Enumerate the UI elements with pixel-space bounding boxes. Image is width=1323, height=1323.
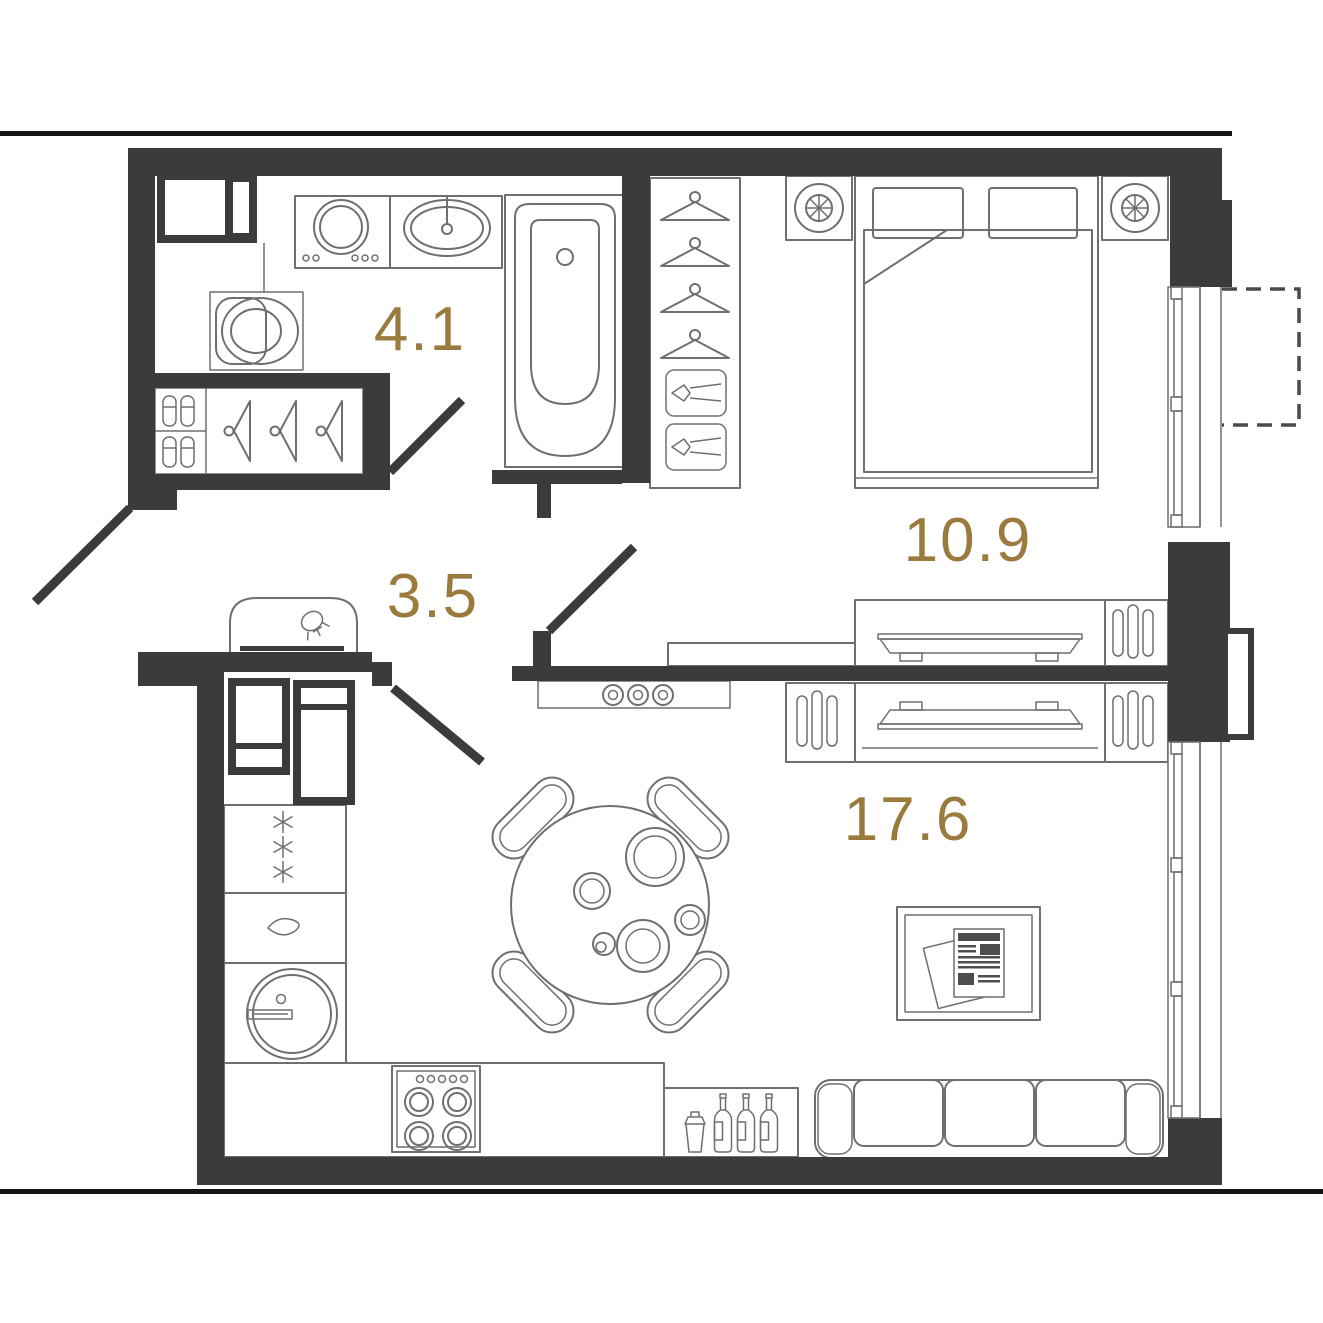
kitchen-door-leaf (393, 688, 482, 762)
label-living-area: 17.6 (808, 784, 1008, 855)
bathroom-door-leaf (390, 400, 462, 472)
bedroom-door-leaf (549, 547, 634, 631)
bedroom-window (1168, 287, 1221, 527)
living-window (1168, 742, 1221, 1118)
balcony-dashed-outline (1222, 289, 1299, 425)
label-hallway-area: 3.5 (353, 561, 513, 632)
entry-door-leaf (35, 508, 130, 602)
openings-layer (0, 0, 1323, 1323)
label-bathroom-area: 4.1 (340, 294, 500, 365)
label-bedroom-area: 10.9 (868, 505, 1068, 576)
floor-plan-canvas: 4.1 3.5 10.9 17.6 (0, 0, 1323, 1323)
